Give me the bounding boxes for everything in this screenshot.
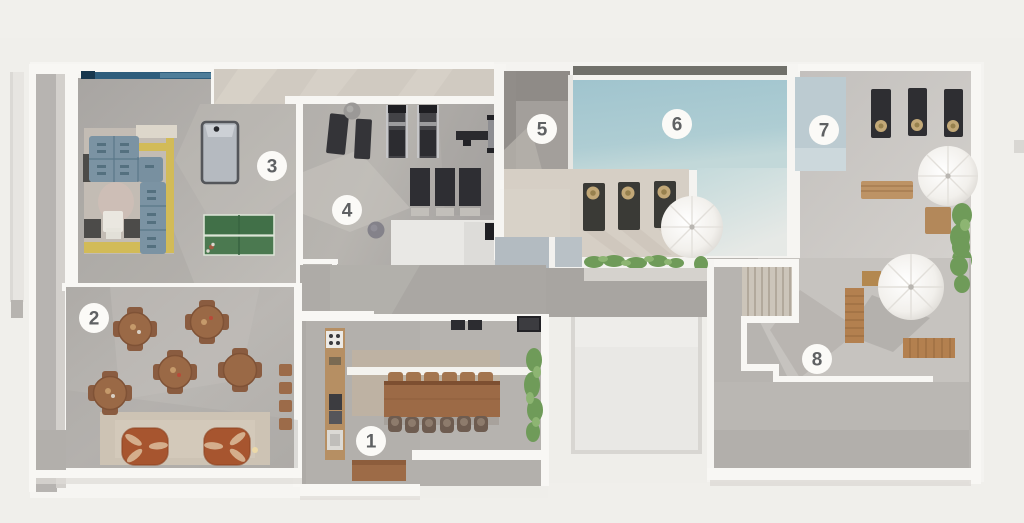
svg-text:2: 2 (89, 309, 100, 330)
svg-text:6: 6 (672, 115, 683, 136)
svg-text:5: 5 (537, 120, 548, 141)
svg-text:7: 7 (819, 121, 830, 142)
svg-text:1: 1 (366, 432, 377, 453)
svg-text:4: 4 (342, 201, 353, 222)
svg-text:8: 8 (812, 350, 823, 371)
svg-text:3: 3 (267, 157, 278, 178)
